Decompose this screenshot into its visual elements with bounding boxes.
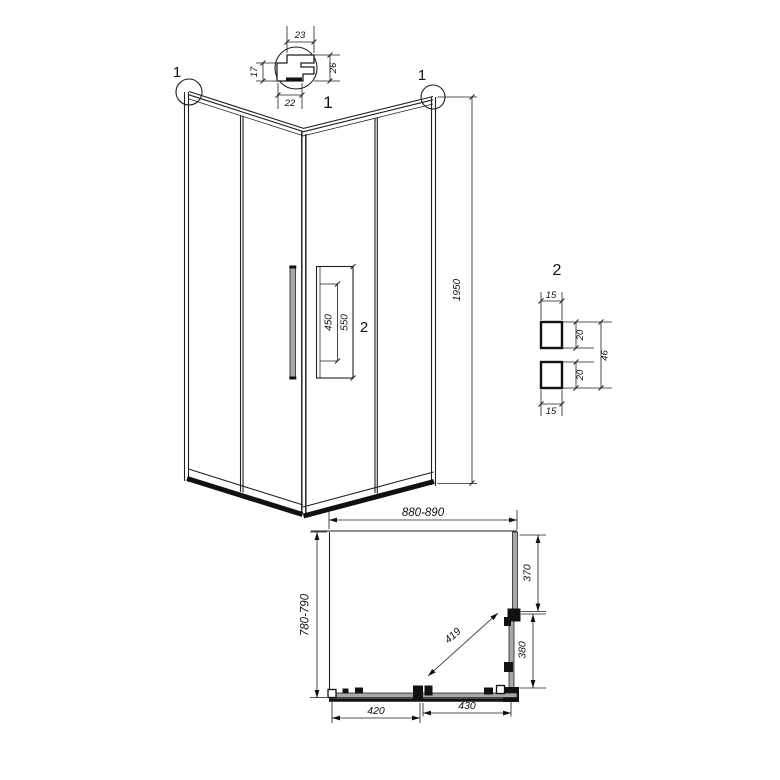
dim-label-1950: 1950 bbox=[452, 278, 463, 301]
profile-gasket bbox=[286, 78, 302, 82]
front-block-1 bbox=[343, 689, 349, 694]
dim-label-20-upper: 20 bbox=[575, 329, 586, 341]
shower-enclosure-drawing: 23 17 26 22 1 450 550 1950 2 1 1 bbox=[0, 0, 780, 780]
front-block-4 bbox=[497, 686, 505, 694]
corner-post bbox=[302, 131, 306, 513]
dim-label-380: 380 bbox=[517, 641, 529, 659]
technical-drawing-canvas: 23 17 26 22 1 450 550 1950 2 1 1 bbox=[0, 0, 780, 780]
plan-view: 880-890 780-790 370 380 419 420 430 bbox=[300, 507, 547, 723]
handle-detail-ref-label: 2 bbox=[360, 319, 368, 336]
front-door-stopper bbox=[413, 686, 423, 702]
door-stiles bbox=[241, 115, 378, 494]
dim-label-26: 26 bbox=[328, 62, 339, 74]
dim-label-370: 370 bbox=[522, 564, 534, 582]
dim-label-420: 420 bbox=[367, 705, 385, 717]
dim-label-450: 450 bbox=[324, 314, 335, 331]
side-door-guide bbox=[504, 662, 513, 672]
detail-1-label: 1 bbox=[323, 93, 332, 112]
bottom-rails bbox=[187, 479, 434, 517]
wall-profile-shape bbox=[277, 55, 314, 81]
dim-label-20-lower: 20 bbox=[575, 369, 586, 381]
callout-label-left: 1 bbox=[173, 64, 181, 81]
dim-label-46: 46 bbox=[600, 350, 611, 361]
handle-side-view bbox=[290, 267, 296, 378]
front-block-2 bbox=[355, 688, 363, 694]
elevation-view: 450 550 1950 2 1 1 bbox=[173, 64, 477, 516]
dim-label-width: 880-890 bbox=[402, 507, 445, 519]
dim-label-419: 419 bbox=[442, 625, 463, 646]
top-rails bbox=[189, 92, 433, 132]
front-wall-bracket bbox=[328, 690, 336, 698]
handle-cap-bottom bbox=[289, 377, 296, 380]
dim-label-15-top: 15 bbox=[546, 290, 557, 301]
side-fixed-panel bbox=[513, 532, 518, 612]
dim-label-22: 22 bbox=[284, 98, 296, 109]
dim-label-depth: 780-790 bbox=[300, 593, 312, 636]
dim-label-17: 17 bbox=[249, 66, 260, 77]
front-block-3 bbox=[484, 688, 493, 695]
detail-1-profile-section: 23 17 26 22 1 bbox=[249, 26, 340, 112]
dim-label-430: 430 bbox=[458, 700, 476, 712]
top-rail-inner-edges bbox=[189, 99, 433, 136]
dim-label-15-bottom: 15 bbox=[546, 406, 557, 417]
handle-cap-top bbox=[289, 266, 296, 269]
wall-posts bbox=[185, 92, 436, 486]
dimension-ticks bbox=[539, 299, 604, 407]
tray-outline bbox=[311, 531, 517, 697]
handle-profile-lower bbox=[541, 362, 562, 388]
dim-label-550: 550 bbox=[340, 314, 351, 331]
dim-label-23: 23 bbox=[294, 30, 306, 41]
side-door-block bbox=[504, 617, 511, 626]
detail-2-label: 2 bbox=[553, 262, 562, 279]
front-door-roller bbox=[425, 686, 433, 696]
detail-2-handle-section: 2 15 20 46 20 15 bbox=[539, 262, 613, 417]
handle-profile-upper bbox=[541, 322, 562, 348]
callout-label-right: 1 bbox=[418, 67, 426, 84]
